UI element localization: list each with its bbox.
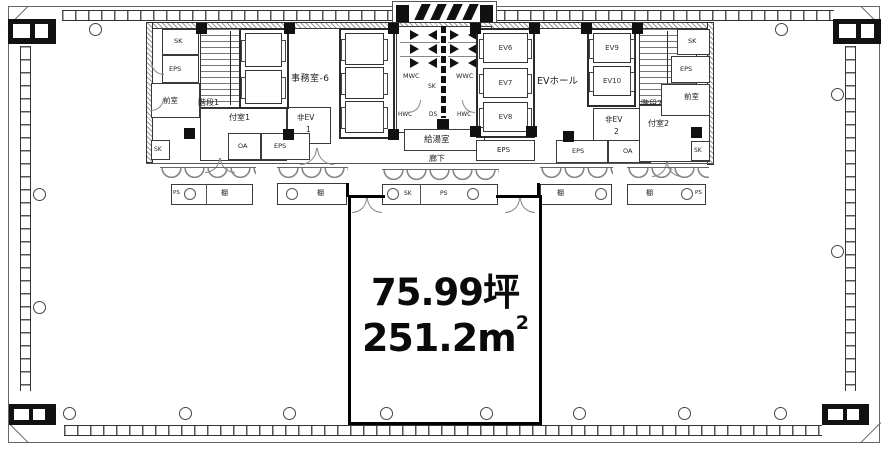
column-circle <box>179 407 192 420</box>
structure-column <box>470 23 481 34</box>
ev7-label: EV7 <box>499 79 513 87</box>
pipe-circle <box>387 188 399 200</box>
sk-label: SK <box>694 148 702 154</box>
ev-hall-label: EVホール <box>537 77 578 87</box>
ds-shaft <box>437 119 449 129</box>
box-divider <box>420 184 421 205</box>
eps-label: EPS <box>169 66 181 73</box>
corridor-doors <box>627 167 709 181</box>
window-band-left <box>20 46 31 391</box>
pipe-circle <box>595 188 607 200</box>
eps-label: EPS <box>680 66 692 73</box>
tenant-wall-connector <box>346 183 349 197</box>
structure-column <box>581 23 592 34</box>
anteroom-label: 前室 <box>163 97 178 105</box>
shelf-label: 棚 <box>221 190 228 197</box>
sk-label: SK <box>688 38 696 45</box>
wc-fixture <box>410 30 419 40</box>
window-band-bottom <box>64 425 822 436</box>
elevator-car-ev6: EV6 <box>483 33 528 63</box>
stair1-label: 階段1 <box>198 99 219 107</box>
stair1-rail <box>230 31 231 105</box>
elevator-car <box>245 70 282 104</box>
floor-plan: SK EPS 前室 階段1 付室1 非EV 1 OA EPS SK 事務室-6 … <box>0 0 889 450</box>
wc-center-wall <box>441 26 446 118</box>
corner-column-inner <box>13 24 30 38</box>
corridor-doors <box>160 167 256 181</box>
wc-stall-line <box>400 56 440 57</box>
elevator-car <box>245 33 282 67</box>
eps-label: EPS <box>274 143 286 150</box>
structure-column <box>563 131 574 142</box>
column-circle <box>480 407 493 420</box>
structure-column <box>529 23 540 34</box>
elevator-car <box>345 101 384 133</box>
elevator-car-ev8: EV8 <box>483 102 528 132</box>
column-circle <box>678 407 691 420</box>
tenant-area-sqm: 251.2m2 <box>362 316 528 360</box>
wc-fixture <box>410 58 419 68</box>
tenant-wall-bottom <box>348 422 542 425</box>
pipe-circle <box>184 188 196 200</box>
corridor-doors <box>382 169 499 183</box>
structure-column <box>388 129 399 140</box>
ev9-label: EV9 <box>605 44 619 52</box>
structure-column <box>388 23 399 34</box>
corridor-doors <box>277 167 348 181</box>
sk-label: SK <box>404 191 412 197</box>
structure-column <box>470 126 481 137</box>
elevator-car-ev9: EV9 <box>593 33 631 63</box>
column-circle <box>283 407 296 420</box>
corridor-doors <box>540 167 613 181</box>
structure-column <box>196 23 207 34</box>
corner-column-inner <box>33 409 45 420</box>
wc-fixture <box>450 58 459 68</box>
vestibule2-label: 付室2 <box>648 120 669 128</box>
column-circle <box>831 245 844 258</box>
shelf-label: 棚 <box>557 190 564 197</box>
structure-column <box>283 129 294 140</box>
corner-column-inner <box>861 24 874 38</box>
ev10-label: EV10 <box>603 77 621 85</box>
corner-column-inner <box>847 409 859 420</box>
vestibule1-label: 付室1 <box>229 114 250 122</box>
column-circle <box>33 301 46 314</box>
mwc-label: MWC <box>403 73 420 80</box>
structure-column <box>184 128 195 139</box>
eps-label: EPS <box>572 148 584 155</box>
wc-fixture <box>450 30 459 40</box>
em-ev2-label: 非EV <box>605 116 622 124</box>
structure-column <box>284 23 295 34</box>
pipe-circle <box>286 188 298 200</box>
elevator-car-ev10: EV10 <box>593 66 631 96</box>
elevator-car <box>345 67 384 99</box>
structure-column <box>526 126 537 137</box>
ps-label: PS <box>173 191 180 197</box>
wc-fixture <box>428 44 437 54</box>
hwc-right-label: HWC <box>457 113 471 119</box>
oa-label: OA <box>623 148 632 155</box>
tenant-area-sqm-value: 251.2m <box>362 316 516 360</box>
elevator-car <box>345 33 384 65</box>
column-circle <box>63 407 76 420</box>
wc-stall-line <box>400 42 440 43</box>
ps-label: PS <box>440 191 447 197</box>
eps-label: EPS <box>497 147 510 154</box>
sk-label: SK <box>174 38 182 45</box>
ps-label: PS <box>695 191 702 197</box>
tenant-area-sqm-exponent: 2 <box>516 312 528 334</box>
corridor-label: 廊下 <box>429 155 445 163</box>
corner-column-inner <box>14 409 29 420</box>
em-ev2-number: 2 <box>614 128 619 136</box>
structure-column <box>632 23 643 34</box>
kitchenette-label: 給湯室 <box>424 136 450 145</box>
corner-column-inner <box>35 24 48 38</box>
wc-fixture <box>410 44 419 54</box>
shelf-label: 棚 <box>317 190 324 197</box>
ds-label: DS <box>429 113 437 119</box>
window-band-right <box>845 46 856 391</box>
sk-label: SK <box>154 147 162 153</box>
column-circle <box>831 88 844 101</box>
column-circle <box>89 23 102 36</box>
ev6-label: EV6 <box>499 44 513 52</box>
oa-label: OA <box>238 143 247 150</box>
corner-column-inner <box>828 409 843 420</box>
wc-fixture <box>428 58 437 68</box>
wwc-label: WWC <box>456 73 473 80</box>
hwc-left-label: HWC <box>398 113 412 119</box>
pipe-circle <box>681 188 693 200</box>
tenant-area-label: 75.99坪 251.2m2 <box>350 252 540 370</box>
wc-fixture <box>450 44 459 54</box>
structure-column <box>691 127 702 138</box>
wc-fixture <box>428 30 437 40</box>
box-divider <box>206 184 207 205</box>
ev8-label: EV8 <box>499 113 513 121</box>
pipe-circle <box>467 188 479 200</box>
column-circle <box>573 407 586 420</box>
tenant-wall-connector <box>537 183 540 197</box>
corner-column-inner <box>839 24 856 38</box>
em-ev1-label: 非EV <box>297 114 314 122</box>
tenant-area-tsubo: 75.99坪 <box>371 262 519 316</box>
office-room-label: 事務室-6 <box>291 75 329 84</box>
column-circle <box>774 407 787 420</box>
wc-sk-label: SK <box>428 84 436 90</box>
column-circle <box>380 407 393 420</box>
shelf-label: 棚 <box>646 190 653 197</box>
anteroom-label: 前室 <box>684 93 699 101</box>
column-circle <box>775 23 788 36</box>
elevator-car-ev7: EV7 <box>483 68 528 98</box>
column-circle <box>33 188 46 201</box>
